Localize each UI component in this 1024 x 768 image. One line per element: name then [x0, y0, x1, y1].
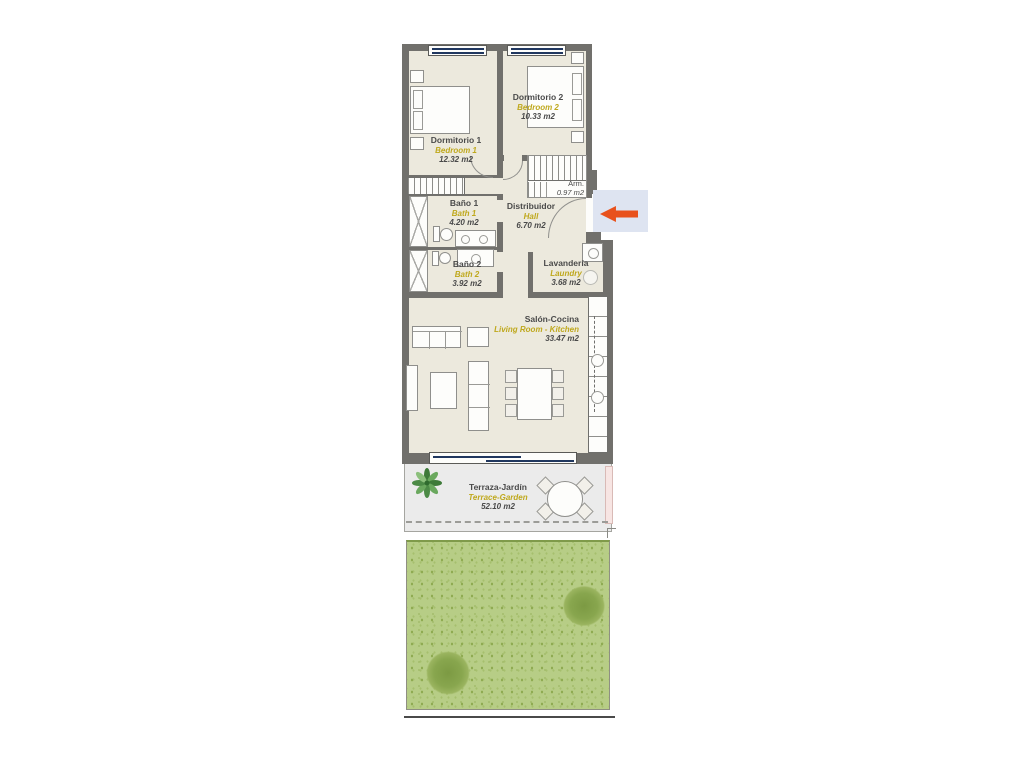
toilet-bowl	[440, 228, 453, 241]
dining-chair	[552, 387, 564, 400]
bedroom2-area: 10.33 m2	[488, 112, 588, 122]
bath2-name-en: Bath 2	[417, 270, 517, 280]
entrance-door-opening	[586, 198, 593, 232]
bedroom1-name-en: Bedroom 1	[406, 146, 506, 156]
hall-closet-hatch	[528, 156, 586, 181]
dining-chair	[505, 370, 517, 383]
laundry-name-es: Lavandería	[516, 259, 616, 269]
sofa-cushion-line	[469, 384, 490, 385]
bath1-double-sink	[455, 230, 496, 247]
bedroom2-nightstand	[571, 131, 584, 143]
bedroom1-wardrobe	[407, 177, 465, 195]
window-glass-line	[511, 48, 563, 50]
sofa-vertical	[468, 361, 489, 431]
window-glass-line	[432, 48, 484, 50]
window-glass-line	[511, 52, 563, 54]
tv-unit	[406, 365, 418, 411]
living-name-es: Salón-Cocina	[459, 315, 579, 325]
bedroom1-nightstand	[410, 70, 424, 83]
washer-drum	[588, 248, 599, 259]
sliding-panel-line	[433, 456, 521, 458]
bedroom1-label: Dormitorio 1 Bedroom 1 12.32 m2	[406, 136, 506, 165]
bedroom1-window	[428, 45, 487, 56]
kitchen-hob-icon	[591, 391, 604, 404]
wardrobe-area: 0.97 m2	[540, 189, 584, 198]
bath2-name-es: Baño 2	[417, 260, 517, 270]
terrace-label: Terraza-Jardín Terrace-Garden 52.10 m2	[448, 483, 548, 512]
terrace-boundary-dashline	[406, 521, 608, 523]
terrace-name-es: Terraza-Jardín	[448, 483, 548, 493]
bedroom1-bed	[410, 86, 470, 134]
laundry-door-opening	[540, 240, 560, 247]
dining-chair	[505, 387, 517, 400]
hall-label: Distribuidor Hall 6.70 m2	[481, 202, 581, 231]
bush	[557, 580, 611, 632]
sink-basin	[461, 235, 470, 244]
terrace-name-en: Terrace-Garden	[448, 493, 548, 503]
bedroom2-name-en: Bedroom 2	[488, 103, 588, 113]
sofa-back-line	[413, 331, 462, 332]
sliding-panel-line	[486, 460, 574, 462]
window-glass-line	[432, 52, 484, 54]
bedroom2-name-es: Dormitorio 2	[488, 93, 588, 103]
sofa-cushion-line	[469, 407, 490, 408]
living-area: 33.47 m2	[459, 334, 579, 344]
garden-lawn	[406, 540, 610, 710]
hall-name-es: Distribuidor	[481, 202, 581, 212]
sofa-cushion-line	[445, 331, 446, 349]
plot-boundary-line	[404, 716, 615, 718]
kitchen-sink-icon	[591, 354, 604, 367]
hall-area: 6.70 m2	[481, 221, 581, 231]
laundry-name-en: Laundry	[516, 269, 616, 279]
laundry-label: Lavandería Laundry 3.68 m2	[516, 259, 616, 288]
living-name-en: Living Room - Kitchen	[459, 325, 579, 335]
bedroom1-area: 12.32 m2	[406, 155, 506, 165]
dining-chair	[552, 370, 564, 383]
armchair	[430, 372, 457, 409]
floor-plan-canvas: Arm. 0.97 m2	[0, 0, 1024, 768]
living-label: Salón-Cocina Living Room - Kitchen 33.47…	[459, 315, 579, 344]
sofa-cushion-line	[429, 331, 430, 349]
terrace-side-strip	[605, 466, 613, 524]
living-sliding-door	[429, 452, 577, 464]
bush	[420, 645, 476, 701]
dining-chair	[505, 404, 517, 417]
plant-icon	[412, 466, 442, 500]
sink-basin	[479, 235, 488, 244]
pillow	[413, 111, 423, 130]
bedroom2-label: Dormitorio 2 Bedroom 2 10.33 m2	[488, 93, 588, 122]
vestibule-floor	[465, 178, 503, 194]
laundry-area: 3.68 m2	[516, 278, 616, 288]
terrace-round-table	[547, 481, 583, 517]
bedroom2-nightstand	[571, 52, 584, 64]
pillow	[572, 73, 582, 95]
bedroom2-window	[507, 45, 566, 56]
hall-name-en: Hall	[481, 212, 581, 222]
pillow	[413, 90, 423, 109]
toilet-tank	[433, 226, 440, 242]
dining-chair	[552, 404, 564, 417]
bedroom1-name-es: Dormitorio 1	[406, 136, 506, 146]
sofa-horizontal	[412, 326, 461, 348]
dining-table	[517, 368, 552, 420]
terrace-area: 52.10 m2	[448, 502, 548, 512]
kitchen-cabinets	[588, 296, 608, 453]
bath2-area: 3.92 m2	[417, 279, 517, 289]
wardrobe-label: Arm. 0.97 m2	[540, 180, 584, 197]
bath2-label: Baño 2 Bath 2 3.92 m2	[417, 260, 517, 289]
terrace-step-line	[607, 528, 616, 538]
